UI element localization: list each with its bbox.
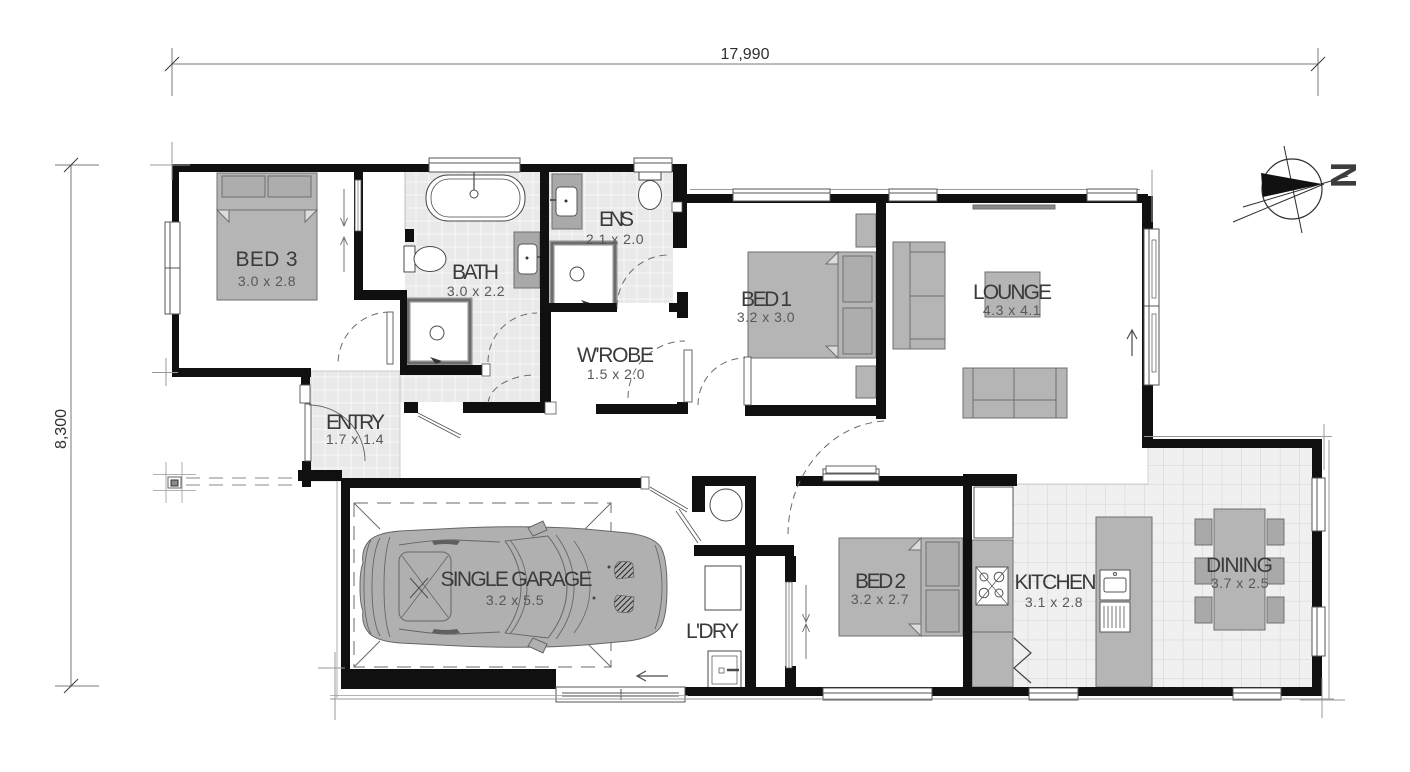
- svg-text:3.7 x 2.5: 3.7 x 2.5: [1211, 575, 1269, 591]
- svg-text:1.5 x 2.0: 1.5 x 2.0: [587, 366, 645, 382]
- svg-text:4.3 x 4.1: 4.3 x 4.1: [983, 302, 1041, 318]
- svg-text:BATH: BATH: [452, 261, 500, 284]
- svg-text:L'DRY: L'DRY: [686, 620, 740, 643]
- svg-text:ENS: ENS: [599, 208, 635, 231]
- svg-text:3.2 x 5.5: 3.2 x 5.5: [486, 592, 544, 608]
- svg-text:3.0 x 2.2: 3.0 x 2.2: [447, 283, 505, 299]
- svg-text:DINING: DINING: [1206, 554, 1274, 577]
- svg-text:1.7 x 1.4: 1.7 x 1.4: [326, 431, 384, 447]
- svg-text:BED 3: BED 3: [236, 248, 299, 271]
- svg-text:N: N: [1323, 162, 1364, 188]
- svg-text:3.0 x 2.8: 3.0 x 2.8: [238, 273, 296, 289]
- svg-text:3.2 x 3.0: 3.2 x 3.0: [737, 309, 795, 325]
- svg-text:17,990: 17,990: [721, 46, 770, 63]
- svg-text:LOUNGE: LOUNGE: [973, 281, 1053, 304]
- svg-text:BED 2: BED 2: [855, 570, 907, 593]
- svg-text:8,300: 8,300: [53, 409, 70, 449]
- svg-text:W'ROBE: W'ROBE: [577, 344, 655, 367]
- svg-text:3.2 x 2.7: 3.2 x 2.7: [851, 591, 909, 607]
- svg-text:SINGLE GARAGE: SINGLE GARAGE: [441, 568, 594, 591]
- svg-text:BED 1: BED 1: [741, 288, 793, 311]
- svg-text:2.1 x 2.0: 2.1 x 2.0: [586, 231, 644, 247]
- svg-text:3.1 x 2.8: 3.1 x 2.8: [1025, 594, 1083, 610]
- svg-text:KITCHEN: KITCHEN: [1015, 571, 1098, 594]
